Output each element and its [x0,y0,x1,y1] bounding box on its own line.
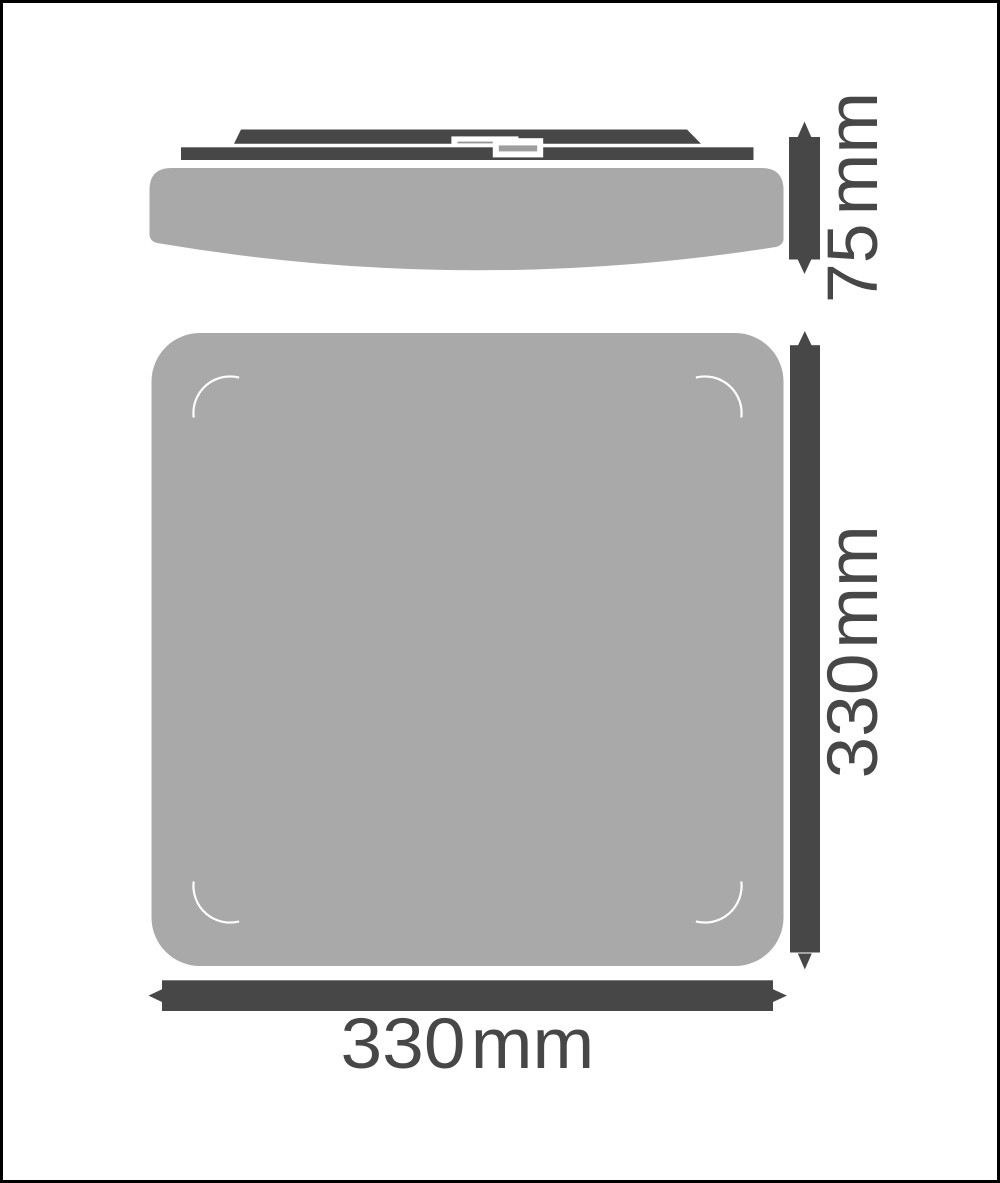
svg-text:75: 75 [813,223,893,303]
svg-text:mm: mm [471,1004,595,1084]
svg-text:mm: mm [813,525,893,649]
svg-text:mm: mm [813,92,893,216]
svg-text:330: 330 [341,1004,466,1084]
svg-text:330: 330 [813,654,893,779]
